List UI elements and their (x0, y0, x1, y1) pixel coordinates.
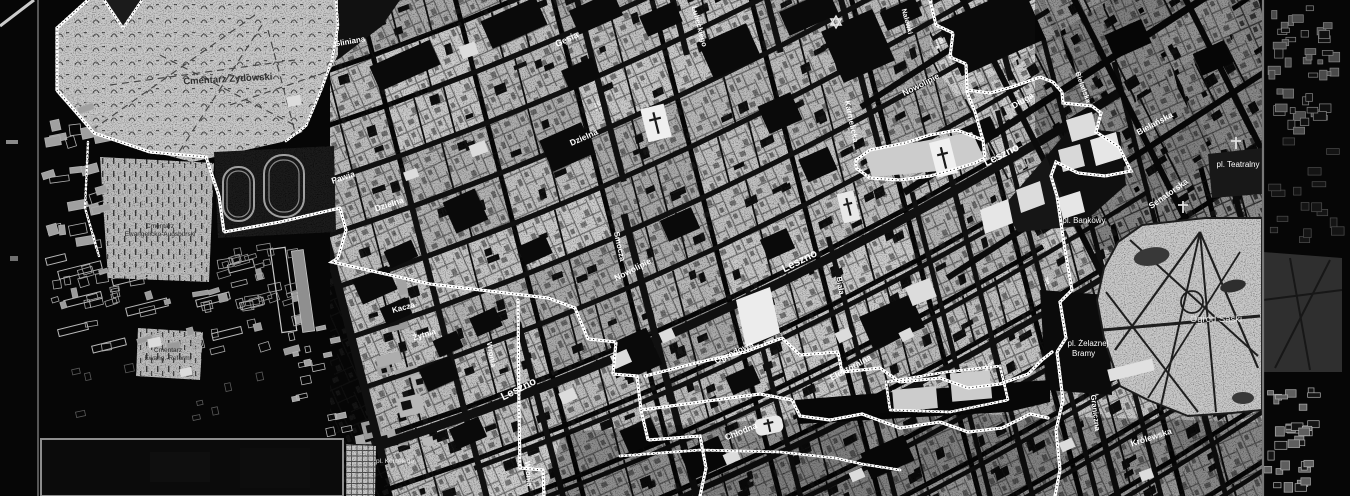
svg-text:pl. Żelaznej: pl. Żelaznej (1068, 339, 1109, 348)
svg-text:Cmentarz: Cmentarz (146, 223, 174, 230)
svg-text:pl. Bankowy: pl. Bankowy (1062, 216, 1105, 225)
svg-text:Ogród Saski: Ogród Saski (1190, 314, 1242, 325)
svg-text:pl. Teatralny: pl. Teatralny (1217, 160, 1260, 169)
svg-text:Ewangelicko-Augsburski: Ewangelicko-Augsburski (125, 231, 196, 238)
svg-text:Bramy: Bramy (1072, 349, 1095, 358)
svg-text:Cmentarz: Cmentarz (154, 347, 182, 354)
svg-text:pl. Kercelego: pl. Kercelego (376, 458, 414, 465)
svg-text:Ewang.-Reform.: Ewang.-Reform. (145, 355, 192, 362)
